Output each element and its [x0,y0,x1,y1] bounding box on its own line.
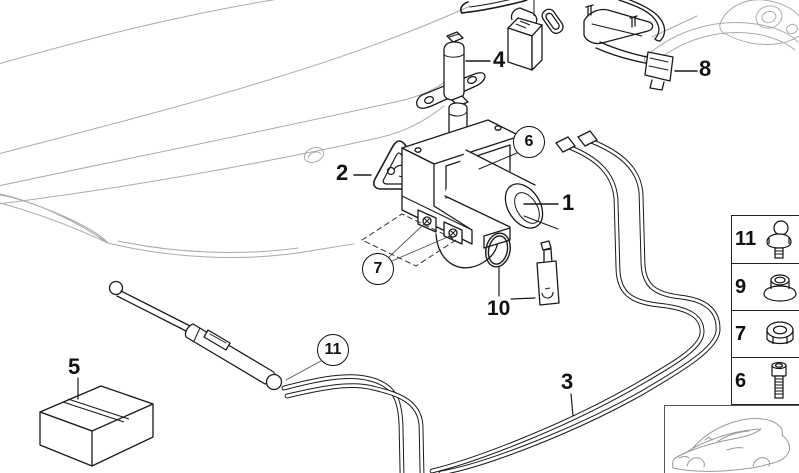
callout-circle-11-label: 11 [325,341,342,359]
buffer-part4-drawing [417,32,485,108]
fastener-legend: 11 9 [731,215,799,405]
gas-strut-drawing [110,282,282,390]
legend-item-7-label: 7 [735,323,761,346]
callout-label-3[interactable]: 3 [561,371,573,393]
flange-nut-icon [761,270,799,304]
hydraulic-pump-drawing [402,96,558,268]
callout-circle-7-label: 7 [374,260,383,278]
car-outline-icon [665,406,799,473]
legend-item-6[interactable]: 6 [732,357,799,404]
callout-circle-7[interactable]: 7 [362,253,394,285]
legend-item-7[interactable]: 7 [732,310,799,357]
trunk-lid-outline [0,0,470,258]
body-panel-context [644,0,799,64]
callout-label-1[interactable]: 1 [562,192,574,214]
socket-head-bolt-icon [761,360,797,402]
ball-pin-icon [761,219,797,261]
parts-diagram: 1 2 3 4 5 8 10 6 7 11 11 9 [0,0,799,473]
callout-label-4[interactable]: 4 [493,49,505,71]
callout-label-5[interactable]: 5 [68,356,80,378]
bracket-drawing [584,0,673,90]
legend-item-9-label: 9 [735,276,761,299]
callout-circle-11[interactable]: 11 [317,334,349,366]
callout-circle-6[interactable]: 6 [513,126,545,158]
hex-nut-icon [761,317,799,351]
legend-item-9[interactable]: 9 [732,263,799,310]
diagram-line-art [0,0,799,473]
vehicle-thumbnail [664,405,799,473]
warning-triangle-top-cut [461,0,529,13]
legend-item-11[interactable]: 11 [732,216,799,263]
callout-label-2[interactable]: 2 [336,162,348,184]
callout-circle-6-label: 6 [525,133,534,151]
lubricant-tube-drawing [537,241,559,305]
callout-leader-lines [78,61,697,416]
repair-kit-box-drawing [40,386,153,466]
legend-item-11-label: 11 [735,228,761,251]
callout-label-10[interactable]: 10 [487,298,510,319]
callout-label-8[interactable]: 8 [699,58,711,80]
relay-and-clip-drawing [508,0,565,70]
legend-item-6-label: 6 [735,370,761,393]
